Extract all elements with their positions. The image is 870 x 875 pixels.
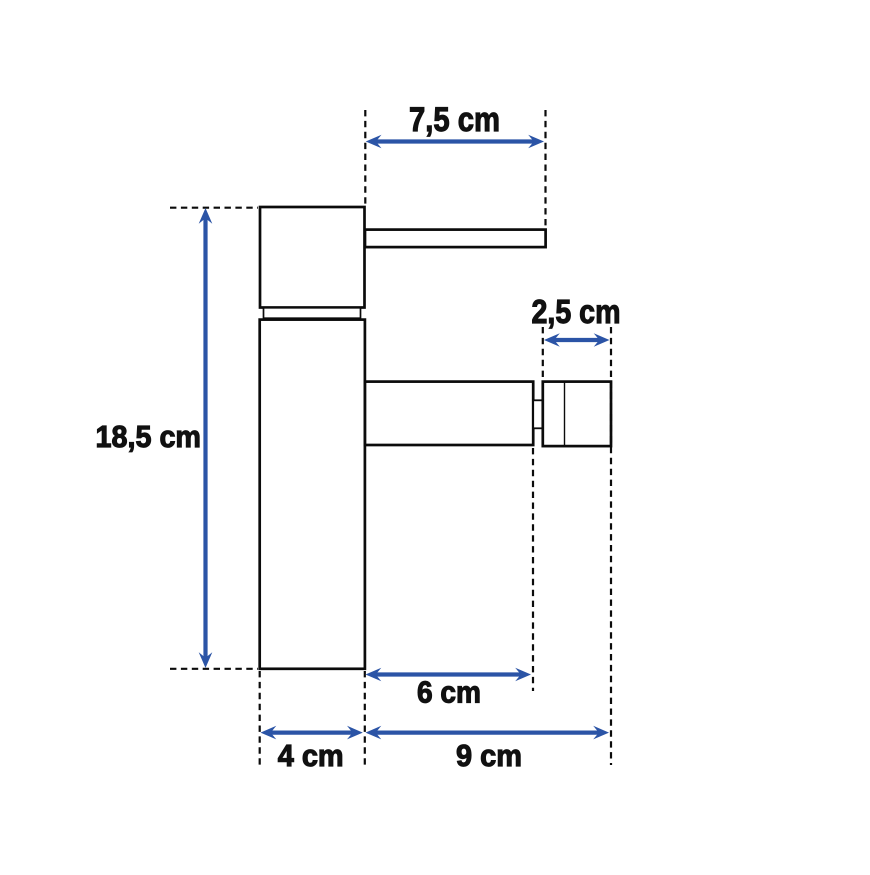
svg-text:9 cm: 9 cm — [456, 738, 522, 773]
svg-text:18,5 cm: 18,5 cm — [96, 419, 202, 454]
svg-text:6 cm: 6 cm — [417, 675, 481, 710]
svg-text:7,5 cm: 7,5 cm — [409, 101, 500, 139]
svg-text:2,5 cm: 2,5 cm — [532, 293, 621, 330]
svg-text:4 cm: 4 cm — [278, 738, 344, 773]
